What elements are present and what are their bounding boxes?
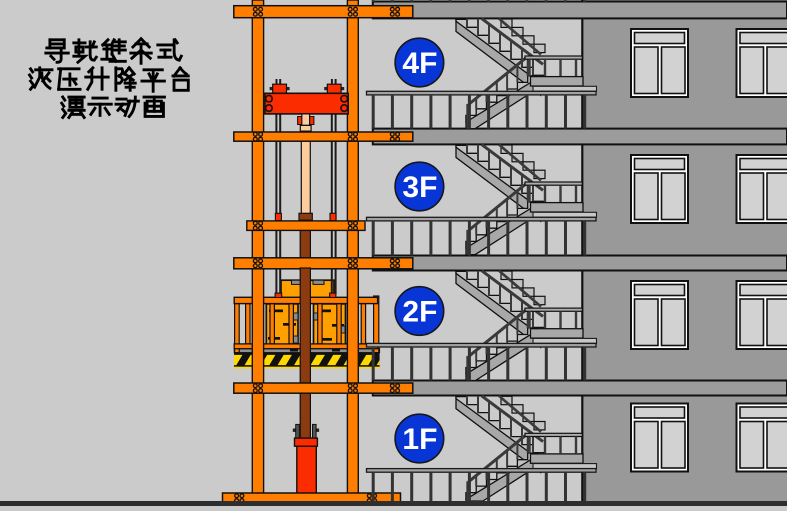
svg-text:2F: 2F [402,296,437,329]
svg-text:1F: 1F [402,423,437,456]
svg-text:3F: 3F [402,171,437,204]
svg-text:4F: 4F [402,47,437,80]
